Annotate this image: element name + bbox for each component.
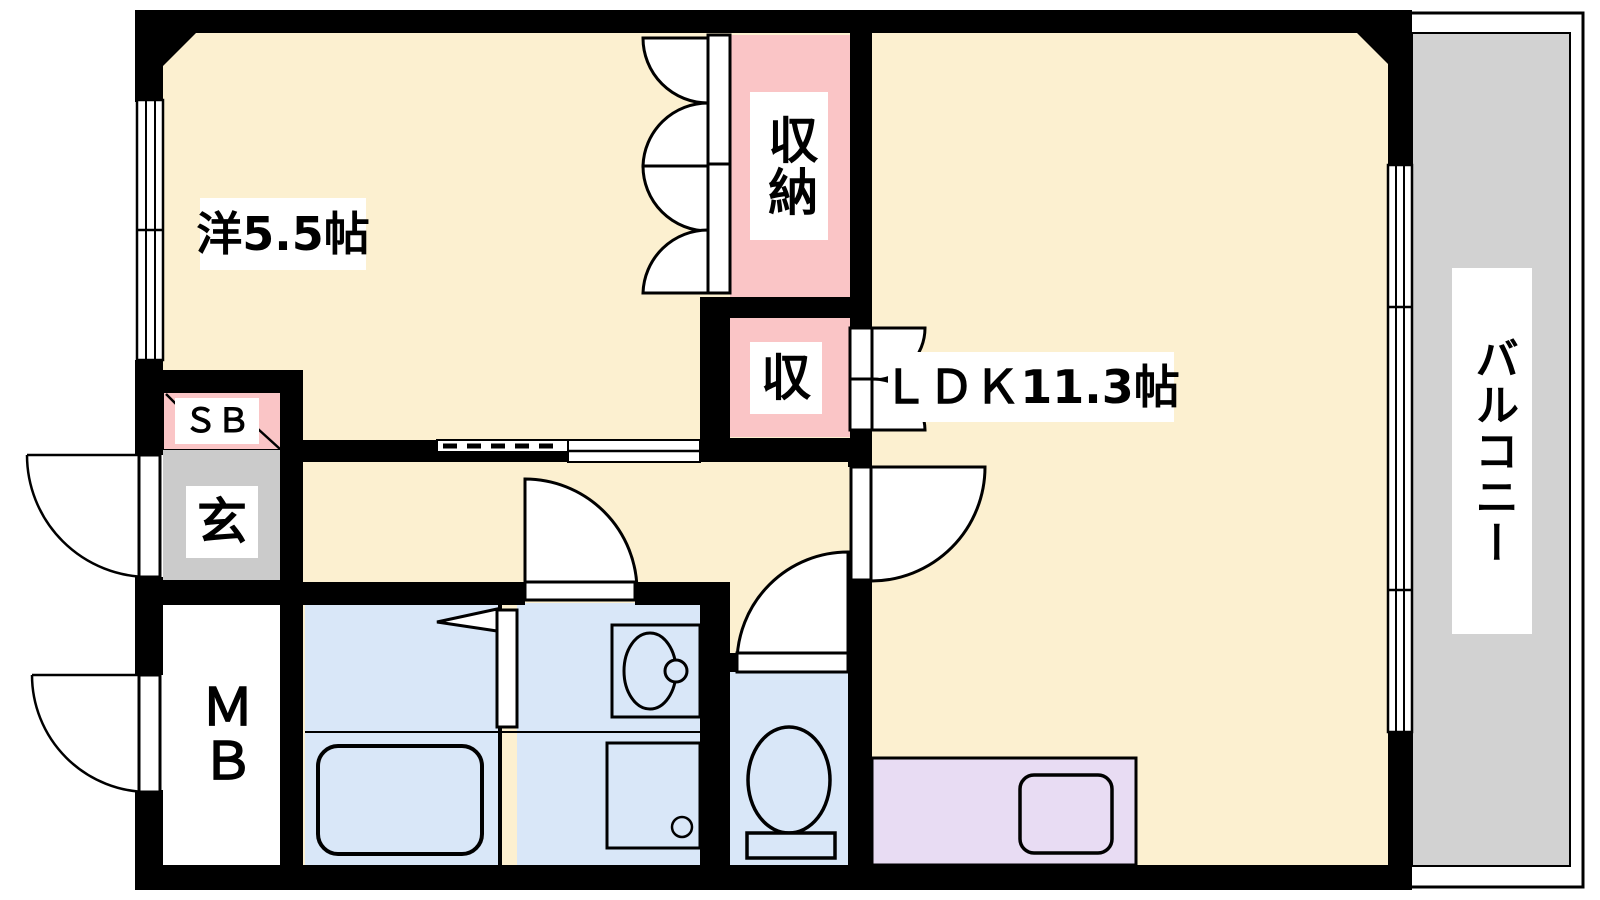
wall-sliding-pocket bbox=[437, 452, 568, 462]
wall-shoebox-top bbox=[140, 370, 303, 392]
wall-west-upper bbox=[135, 10, 163, 102]
wall-washblock-north-left bbox=[303, 582, 525, 605]
window-west bbox=[137, 100, 163, 360]
label-balcony: バルコニー bbox=[1452, 268, 1532, 634]
wall-south bbox=[135, 865, 1412, 890]
label-ldk: ＬＤＫ11.3帖 bbox=[888, 352, 1174, 422]
label-closet: 収納 bbox=[750, 92, 828, 240]
wall-entrance-south bbox=[140, 580, 303, 605]
label-shoe-box: ＳＢ bbox=[175, 398, 259, 444]
wall-closetblock-south bbox=[700, 438, 872, 462]
meter-box-door bbox=[32, 675, 160, 792]
wall-entrance-east bbox=[280, 392, 303, 865]
wall-smallcloset-west bbox=[700, 318, 730, 438]
wall-closet-east bbox=[850, 32, 872, 300]
wall-west-lower bbox=[135, 790, 163, 890]
kitchen-counter bbox=[872, 758, 1136, 865]
wall-east-lower bbox=[1388, 732, 1412, 890]
kitchen-sink bbox=[1020, 775, 1112, 853]
wall-closet-divider bbox=[700, 297, 872, 318]
floorplan: 洋5.5帖 ＬＤＫ11.3帖 収納 収 ＳＢ 玄 ＭＢ バルコニー bbox=[0, 0, 1600, 900]
wall-washroom-toilet bbox=[700, 582, 730, 865]
wall-hall-ldk bbox=[848, 580, 872, 865]
wall-north bbox=[135, 10, 1412, 33]
wall-westernroom-south bbox=[292, 440, 437, 462]
entrance-door bbox=[27, 455, 160, 577]
wall-east-upper bbox=[1388, 10, 1412, 165]
label-entrance: 玄 bbox=[186, 486, 258, 558]
closet-double-doors bbox=[643, 35, 730, 293]
bathroom-floor bbox=[305, 605, 500, 865]
label-small-closet: 収 bbox=[750, 342, 822, 414]
label-western-room: 洋5.5帖 bbox=[200, 198, 366, 270]
label-meter-box: ＭＢ bbox=[172, 628, 272, 840]
wall-washblock-north-right bbox=[635, 582, 710, 605]
toilet bbox=[747, 727, 835, 858]
window-balcony-sliding bbox=[1388, 165, 1412, 732]
